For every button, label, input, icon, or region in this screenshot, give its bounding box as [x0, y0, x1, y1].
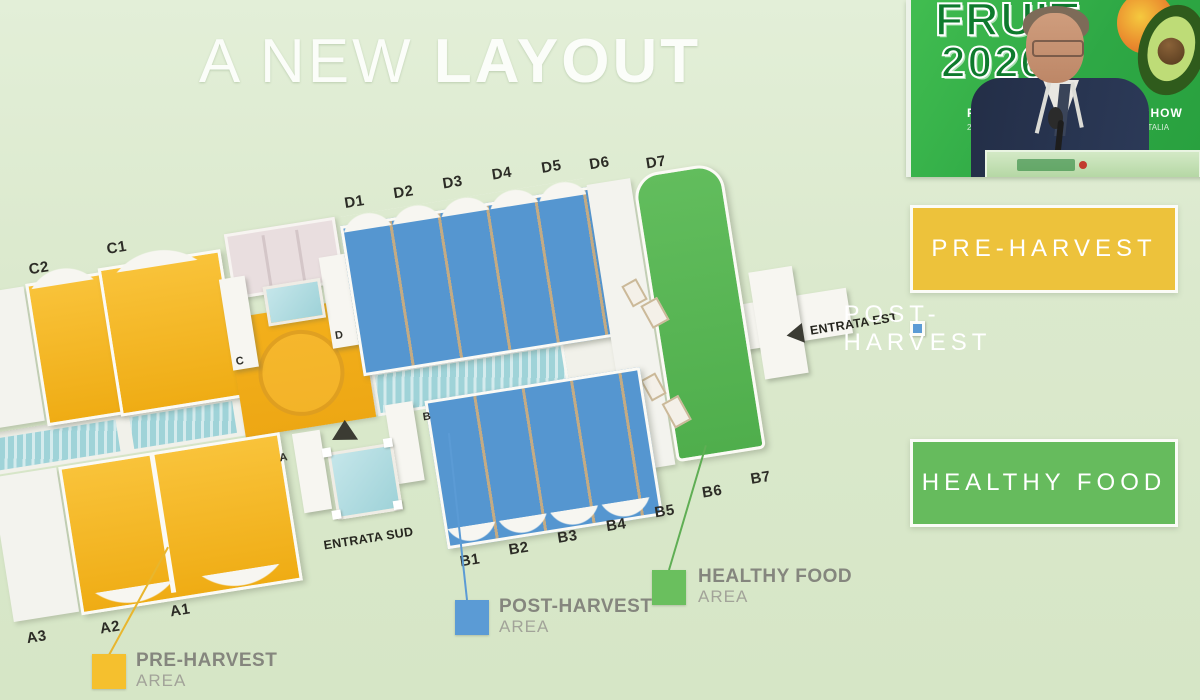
pre-harvest-area-title: PRE-HARVEST: [136, 650, 277, 672]
south-gate-glass-pool: [327, 443, 403, 520]
legend-panel-post-harvest: POST-HARVEST: [910, 321, 925, 336]
entrance-south-label: ENTRATA SUD: [323, 524, 415, 552]
gate-label-c: C: [235, 355, 245, 368]
pre-harvest-area-subtitle: AREA: [136, 671, 186, 691]
hall-label-d7: D7: [645, 152, 668, 172]
hall-label-d2: D2: [392, 182, 415, 202]
title-bold: LAYOUT: [434, 27, 701, 96]
hall-label-d6: D6: [588, 153, 611, 173]
hall-label-b6: B6: [701, 482, 724, 502]
south-gate-pier-left: [292, 430, 332, 513]
legend-panel-pre-harvest-label: PRE-HARVEST: [931, 235, 1156, 263]
hall-label-d3: D3: [441, 172, 464, 192]
legend-panel-healthy-food: HEALTHY FOOD: [910, 439, 1178, 527]
east-entrance-arrow-icon: [785, 323, 805, 345]
podium-logo: [1017, 159, 1075, 171]
gate-label-b: B: [422, 410, 432, 423]
hall-label-d4: D4: [491, 164, 514, 184]
canopy-post: [322, 447, 332, 457]
title-regular: A NEW: [199, 27, 414, 96]
speaker-video-overlay: FRUIT 2026 FRU L SHOW 21-22- RE · ITALIA: [906, 0, 1200, 177]
legend-panel-healthy-food-label: HEALTHY FOOD: [922, 469, 1166, 497]
podium-logo-dot: [1079, 161, 1087, 169]
page-title: A NEW LAYOUT: [0, 26, 900, 97]
speaker-glasses: [1032, 40, 1084, 57]
canopy-post: [331, 510, 341, 520]
post-harvest-area-subtitle: AREA: [499, 617, 549, 637]
pre-harvest-swatch: [92, 654, 126, 689]
legend-panel-post-harvest-label: POST-HARVEST: [844, 301, 992, 357]
healthy-food-swatch: [652, 570, 686, 605]
healthy-food-area-title: HEALTHY FOOD: [698, 566, 852, 588]
hall-label-c2: C2: [28, 258, 51, 278]
south-entrance-arrow-icon: [332, 420, 358, 440]
hall-label-a3: A3: [25, 627, 48, 647]
hall-label-b7: B7: [749, 468, 772, 488]
post-harvest-area-title: POST-HARVEST: [499, 596, 652, 618]
post-harvest-swatch: [455, 600, 489, 635]
gate-label-d: D: [334, 329, 344, 342]
slide: A NEW LAYOUT: [0, 0, 1200, 700]
canopy-post: [383, 438, 393, 448]
legend-panel-pre-harvest: PRE-HARVEST: [910, 205, 1178, 293]
podium: [985, 150, 1200, 177]
building-seam: [295, 230, 306, 282]
hall-label-b5: B5: [653, 501, 676, 521]
hall-label-a1: A1: [169, 600, 192, 620]
hall-label-d5: D5: [540, 157, 563, 177]
hall-label-b3: B3: [556, 527, 579, 547]
building-seam: [261, 235, 272, 287]
gate-label-a: A: [279, 451, 289, 464]
venue-map: D1 D2 D3 D4 D5 D6 D7 C2 C1 A3 A2 A1 B1 B…: [0, 121, 1000, 671]
hall-label-d1: D1: [343, 192, 366, 212]
hall-c1-pre-harvest: [98, 249, 244, 417]
canopy-post: [393, 500, 403, 510]
hall-label-c1: C1: [105, 238, 128, 258]
healthy-food-area-subtitle: AREA: [698, 587, 748, 607]
hall-label-b4: B4: [605, 515, 628, 535]
hall-label-b2: B2: [507, 539, 530, 559]
